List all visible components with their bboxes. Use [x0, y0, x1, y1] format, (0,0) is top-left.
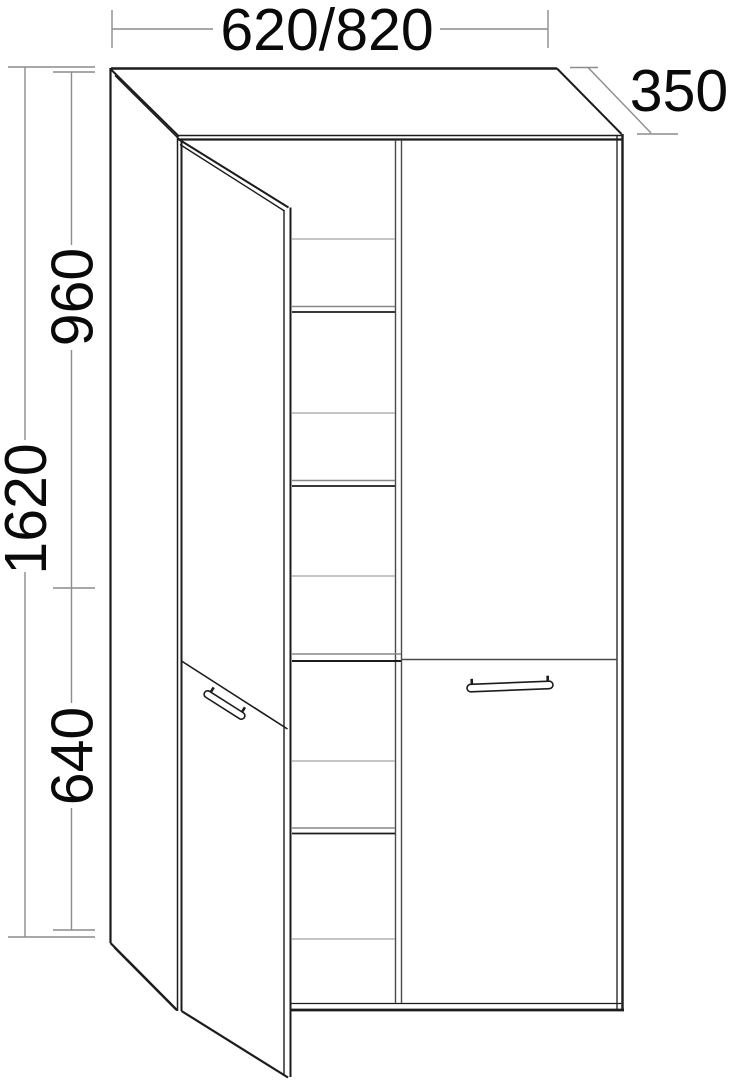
door-top-edge-outer: [179, 140, 289, 208]
top-left-diagonal-inner: [115, 76, 180, 141]
right-door-handle-bar: [467, 681, 553, 692]
upper-section-dimension-label: 960: [40, 248, 106, 346]
drawing-canvas: 620/820 350 1620 960 640: [0, 0, 731, 1080]
linework-layer: [8, 10, 678, 1078]
door-bottom-edge: [182, 1011, 289, 1078]
cabinet-technical-drawing: 620/820 350 1620 960 640: [0, 0, 731, 1080]
side-bottom-diagonal-inner: [114, 948, 176, 1011]
depth-dimension-label: 350: [630, 58, 728, 124]
left-door-handle-bar: [203, 689, 246, 720]
top-right-diagonal: [557, 69, 622, 135]
lower-section-dimension-label: 640: [40, 707, 106, 805]
door-top-edge-inner: [180, 145, 285, 212]
handles-layer: [203, 676, 553, 721]
height-dimension-label: 1620: [0, 443, 59, 574]
top-left-diagonal-outer: [111, 70, 179, 137]
width-dimension-label: 620/820: [220, 0, 433, 63]
door-split-diagonal: [182, 661, 288, 729]
right-door-handle: [467, 676, 553, 692]
